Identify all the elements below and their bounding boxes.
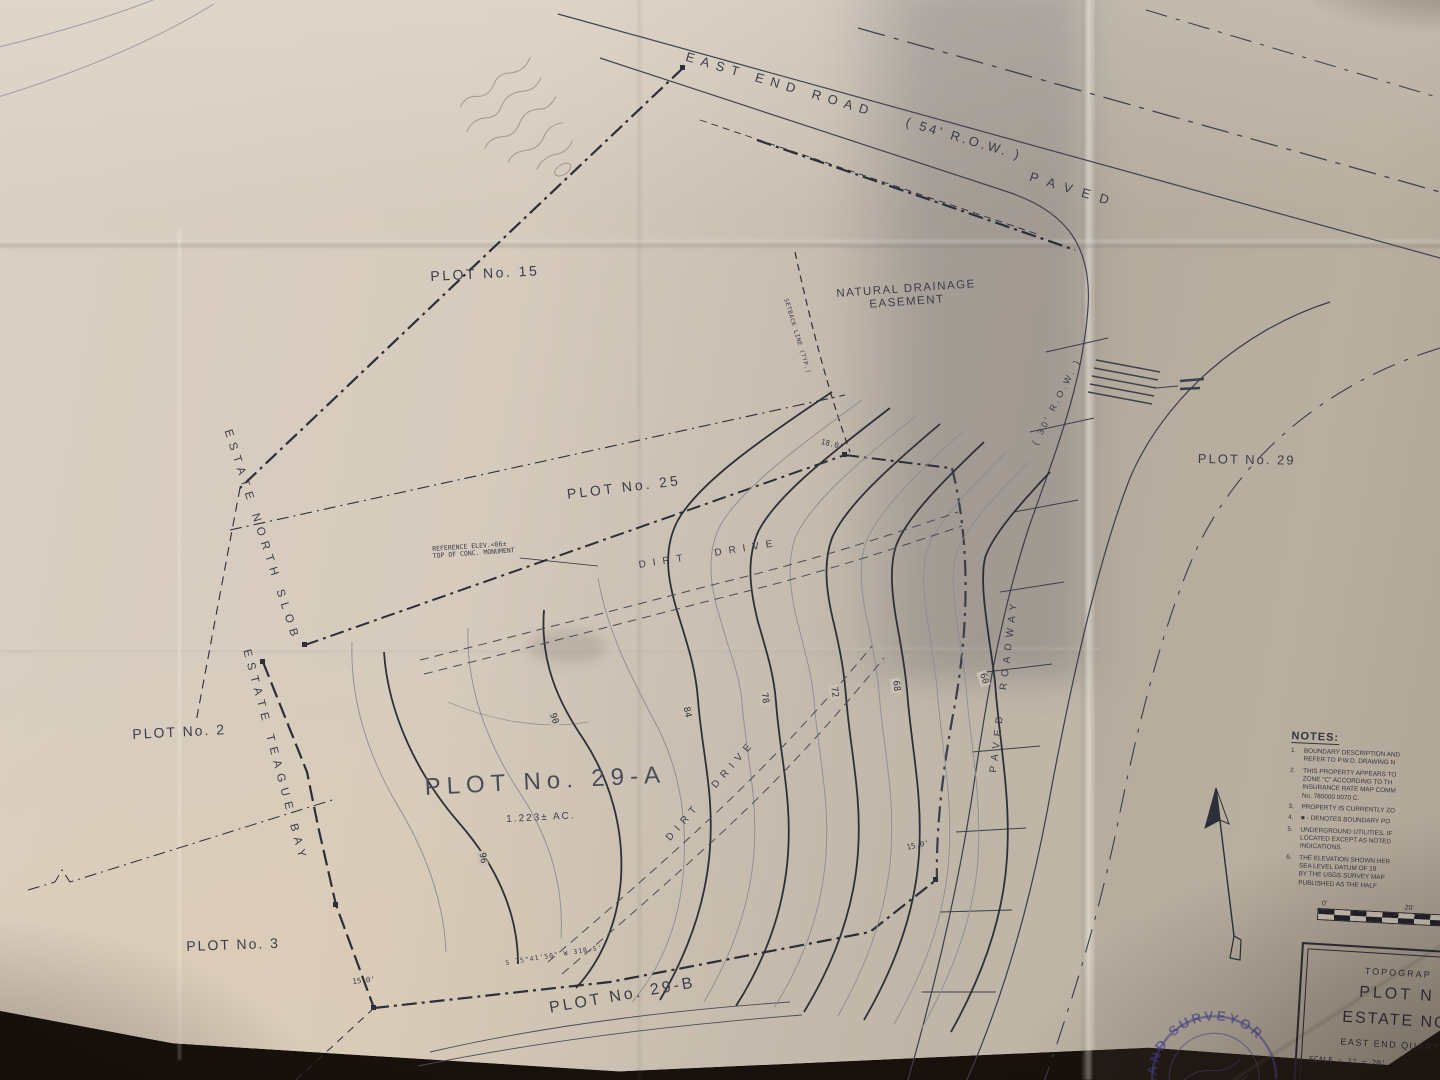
contour-lines-index <box>384 392 1050 1032</box>
stamp-arc-text: LAND SURVEYOR <box>1128 993 1273 1080</box>
dirt-drive-lines <box>420 512 962 974</box>
parcel-boundaries <box>28 65 1075 1080</box>
plot-3-label: PLOT No. 3 <box>186 935 280 954</box>
title-block-quarter: EAST END QUARTE <box>1298 1034 1440 1056</box>
title-block-scale: SCALE : 1" = 20' <box>1297 1054 1440 1075</box>
note-item: 2. THIS PROPERTY APPEARS TOZONE "C" ACCO… <box>1289 767 1440 807</box>
title-block: TOPOGRAP PLOT N ESTATE NO EAST END QUART… <box>1293 942 1440 1080</box>
notes-title: NOTES: <box>1291 730 1339 745</box>
notes-block: NOTES: 1. BOUNDARY DESCRIPTION ANDREFER … <box>1285 726 1440 897</box>
culvert-hatch <box>1088 360 1204 404</box>
contour-label-72: 72 <box>828 684 840 700</box>
handwritten-notes <box>451 56 594 206</box>
svg-text:LAND SURVEYOR: LAND SURVEYOR <box>1128 993 1273 1080</box>
title-block-plot: PLOT N <box>1301 980 1440 1010</box>
bottom-track-lines <box>418 1002 802 1066</box>
corner-terrain-lines <box>0 0 214 98</box>
north-arrow <box>1205 788 1241 960</box>
boundary-monuments <box>260 65 938 1010</box>
survey-linework <box>0 0 1440 1080</box>
contour-label-68: 68 <box>890 678 902 694</box>
photo-of-survey-map: EAST END ROAD ( 54' R.O.W. ) PAVED PLOT … <box>0 0 1440 1080</box>
scale-zero-label: 0' <box>1322 900 1328 907</box>
roadway-lot-ticks <box>922 338 1108 992</box>
scale-twenty-label: 20' <box>1404 905 1413 912</box>
note-item: 6. THE ELEVATION SHOWN HERSEA LEVEL DATU… <box>1285 853 1440 893</box>
plot-29-label: PLOT No. 29 <box>1198 452 1296 469</box>
note-item: 5. UNDERGROUND UTILITIES, IFLOCATED EXCE… <box>1287 826 1440 858</box>
surveyor-stamp: LAND SURVEYOR <box>1118 988 1288 1080</box>
title-block-estate: ESTATE NO <box>1299 1006 1440 1036</box>
